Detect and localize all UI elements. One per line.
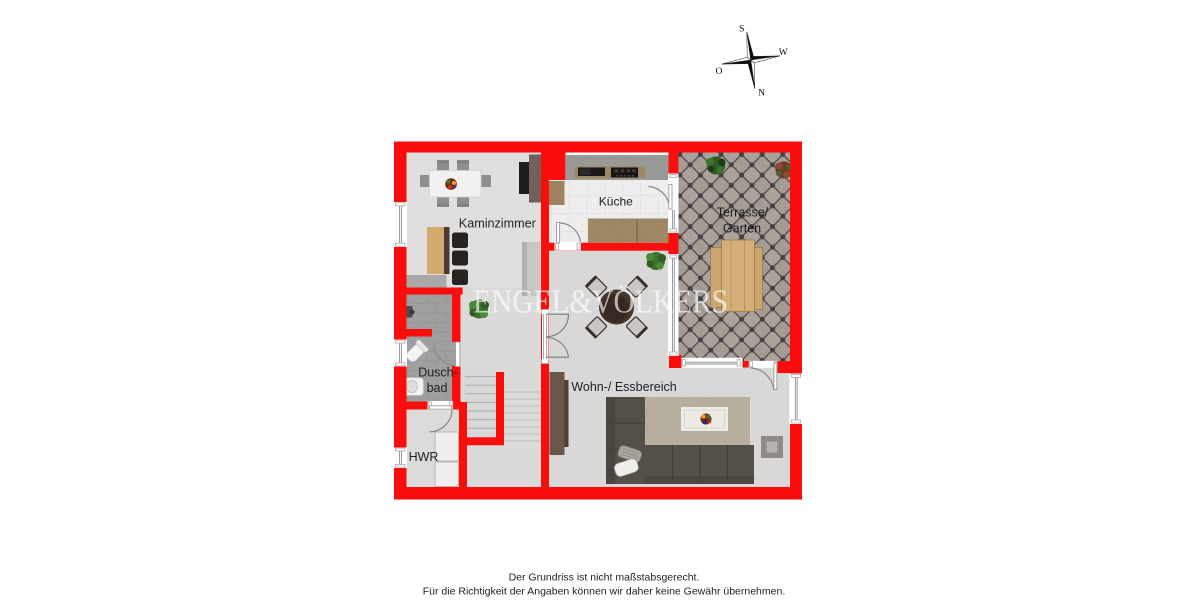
- svg-text:S: S: [739, 24, 744, 34]
- svg-text:ENGEL&VÖLKERS: ENGEL&VÖLKERS: [473, 283, 728, 320]
- svg-text:Wohn-/ Essbereich: Wohn-/ Essbereich: [571, 380, 676, 394]
- svg-text:Küche: Küche: [599, 195, 633, 209]
- svg-text:Der Grundriss ist nicht maßsta: Der Grundriss ist nicht maßstabsgerecht.: [509, 571, 700, 583]
- svg-text:Terrasse/: Terrasse/: [717, 206, 769, 220]
- svg-text:Für die Richtigkeit der Angabe: Für die Richtigkeit der Angaben können w…: [423, 585, 785, 597]
- svg-text:HWR: HWR: [409, 450, 439, 464]
- svg-text:W: W: [779, 48, 788, 58]
- svg-text:Garten: Garten: [723, 222, 761, 236]
- svg-text:O: O: [716, 67, 723, 77]
- svg-text:Dusch-: Dusch-: [418, 365, 458, 379]
- svg-text:Kaminzimmer: Kaminzimmer: [459, 217, 536, 231]
- svg-text:N: N: [758, 89, 765, 99]
- svg-text:bad: bad: [427, 381, 448, 395]
